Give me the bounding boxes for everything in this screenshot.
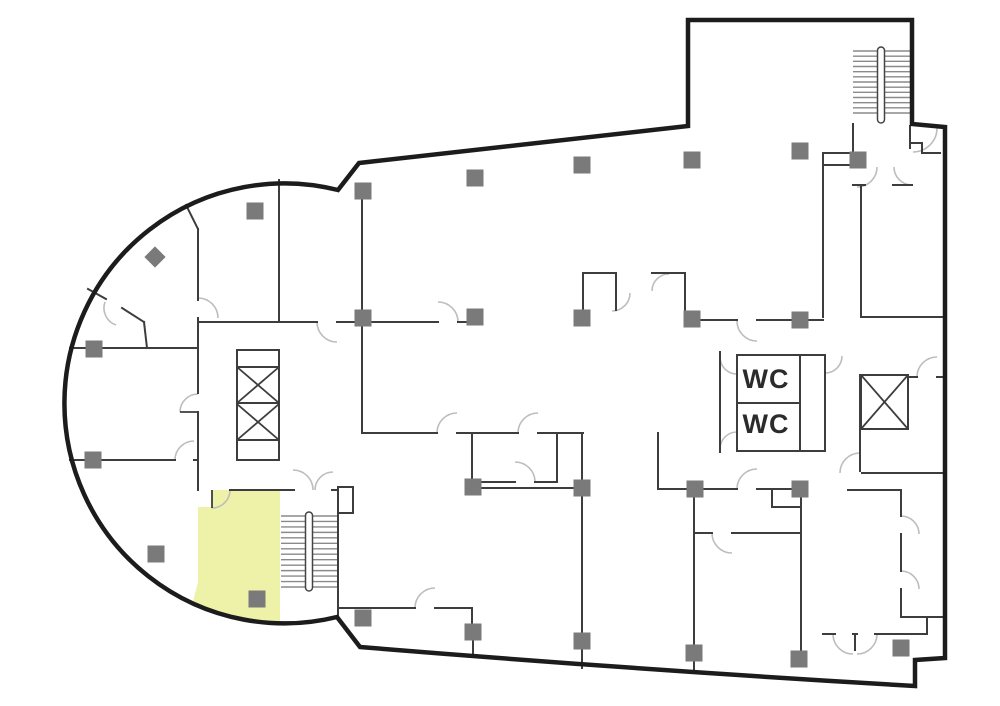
column-marker — [574, 310, 591, 327]
column-marker — [85, 452, 102, 469]
wc-label: WC — [743, 409, 790, 439]
column-marker — [574, 633, 591, 650]
highlighted-room-door-notch — [198, 490, 212, 507]
stair-rail — [306, 512, 313, 591]
floor-plan-canvas: WCWC — [0, 0, 1000, 706]
column-marker — [249, 591, 266, 608]
column-marker — [893, 640, 910, 657]
column-marker — [355, 310, 372, 327]
stair-rail — [878, 47, 885, 123]
floor-plan-svg: WCWC — [0, 0, 1000, 706]
column-marker — [684, 311, 701, 328]
column-marker — [247, 203, 264, 220]
column-marker — [792, 481, 809, 498]
column-marker — [686, 645, 703, 662]
column-marker — [687, 481, 704, 498]
highlighted-room[interactable] — [192, 490, 280, 623]
column-marker — [467, 309, 484, 326]
column-marker — [467, 170, 484, 187]
column-marker — [684, 152, 701, 169]
column-marker — [465, 479, 482, 496]
wc-label: WC — [743, 364, 790, 394]
column-marker — [148, 546, 165, 563]
column-marker — [465, 624, 482, 641]
column-marker — [791, 651, 808, 668]
plan-background — [0, 0, 1000, 706]
column-marker — [355, 183, 372, 200]
column-marker — [355, 610, 372, 627]
column-marker — [86, 341, 103, 358]
column-marker — [792, 312, 809, 329]
column-marker — [574, 157, 591, 174]
column-marker — [574, 480, 591, 497]
column-marker — [792, 143, 809, 160]
column-marker — [850, 152, 867, 169]
